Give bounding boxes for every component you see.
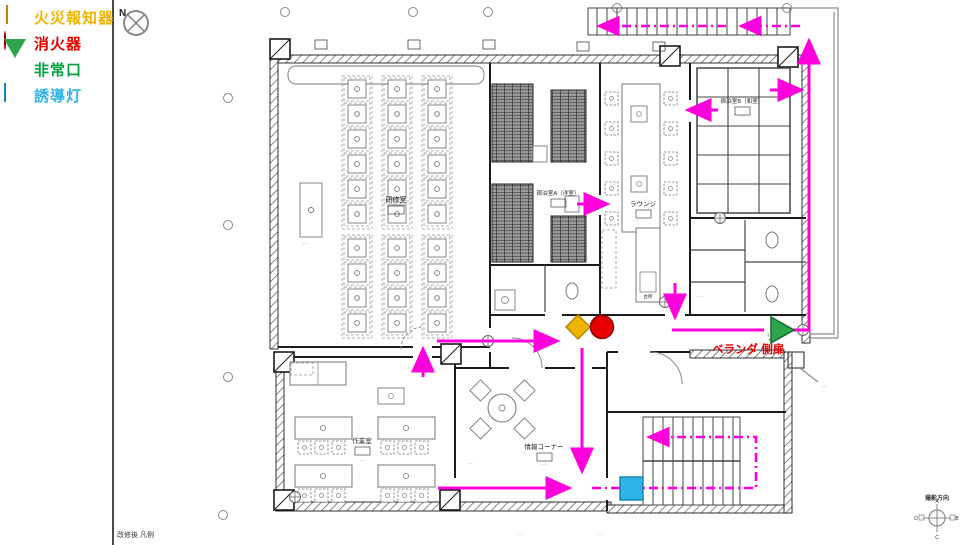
room-label-workroom: 作業室: [352, 436, 372, 445]
svg-text:·····: ·····: [517, 532, 524, 537]
svg-text:·····: ·····: [380, 213, 387, 218]
room-label-bedroom-b: 宿泊室B（和室）: [721, 97, 764, 105]
legend-label: 誘導灯: [34, 85, 82, 106]
svg-text:·····: ·····: [633, 218, 640, 223]
legend-label: 消火器: [34, 33, 82, 54]
svg-text:·····: ·····: [821, 384, 828, 389]
room-label-training: 研修室: [386, 195, 407, 204]
svg-text:·····: ·····: [541, 462, 548, 467]
svg-text:·····: ·····: [302, 241, 309, 246]
fire-extinguisher-marker: [591, 316, 614, 339]
svg-text:·····: ·····: [697, 294, 704, 299]
dir-c: C: [935, 535, 939, 541]
direction-marker: 撮影方向 A B C D: [914, 494, 959, 541]
emergency-exit-marker: [771, 317, 794, 343]
emergency-exit-icon: [4, 58, 26, 80]
dir-b: B: [955, 516, 959, 522]
legend-label: 火災報知器: [34, 7, 114, 28]
svg-text:·····: ·····: [545, 212, 552, 217]
room-label-lounge: ラウンジ: [630, 200, 657, 208]
north-compass: N: [119, 8, 148, 35]
legend-label: 非常口: [34, 59, 82, 80]
safety-markers: [566, 315, 794, 500]
desk-grid: [342, 76, 452, 338]
workroom: [290, 362, 435, 502]
legend-item-emergency-exit: 非常口: [4, 56, 114, 82]
guide-light-marker: [620, 477, 643, 500]
info-corner: [470, 380, 535, 439]
floor-plan-svg: N: [0, 0, 960, 545]
dir-d: D: [914, 516, 918, 522]
room-label-info-corner: 情報コーナー: [525, 442, 564, 451]
room-label-kitchen: 台所: [643, 293, 653, 300]
internal-staircase: [643, 417, 740, 505]
svg-text:·····: ·····: [359, 458, 366, 463]
svg-text:·····: ·····: [587, 339, 594, 344]
svg-text:·····: ·····: [467, 461, 474, 466]
legend-item-guide-light: 誘導灯: [4, 82, 114, 108]
svg-text:·····: ·····: [739, 114, 746, 119]
bottom-left-note: 改修後 凡例: [117, 530, 154, 539]
svg-text:·····: ·····: [597, 532, 604, 537]
evacuation-floor-plan: 火災報知器 消火器 非常口 誘導灯: [0, 0, 960, 545]
fire-alarm-icon: [4, 6, 26, 28]
legend-item-fire-alarm: 火災報知器: [4, 4, 114, 30]
lounge: [602, 84, 677, 302]
guide-light-icon: [4, 84, 26, 106]
legend: 火災報知器 消火器 非常口 誘導灯: [4, 4, 114, 108]
room-label-bedroom-a: 宿泊室A（洋室）: [537, 189, 580, 197]
veranda-door-label: ベランダ 側扉: [712, 342, 784, 356]
fire-alarm-marker: [566, 315, 590, 339]
bedroom-a: [492, 84, 586, 310]
route-stair-loop: [592, 437, 756, 488]
